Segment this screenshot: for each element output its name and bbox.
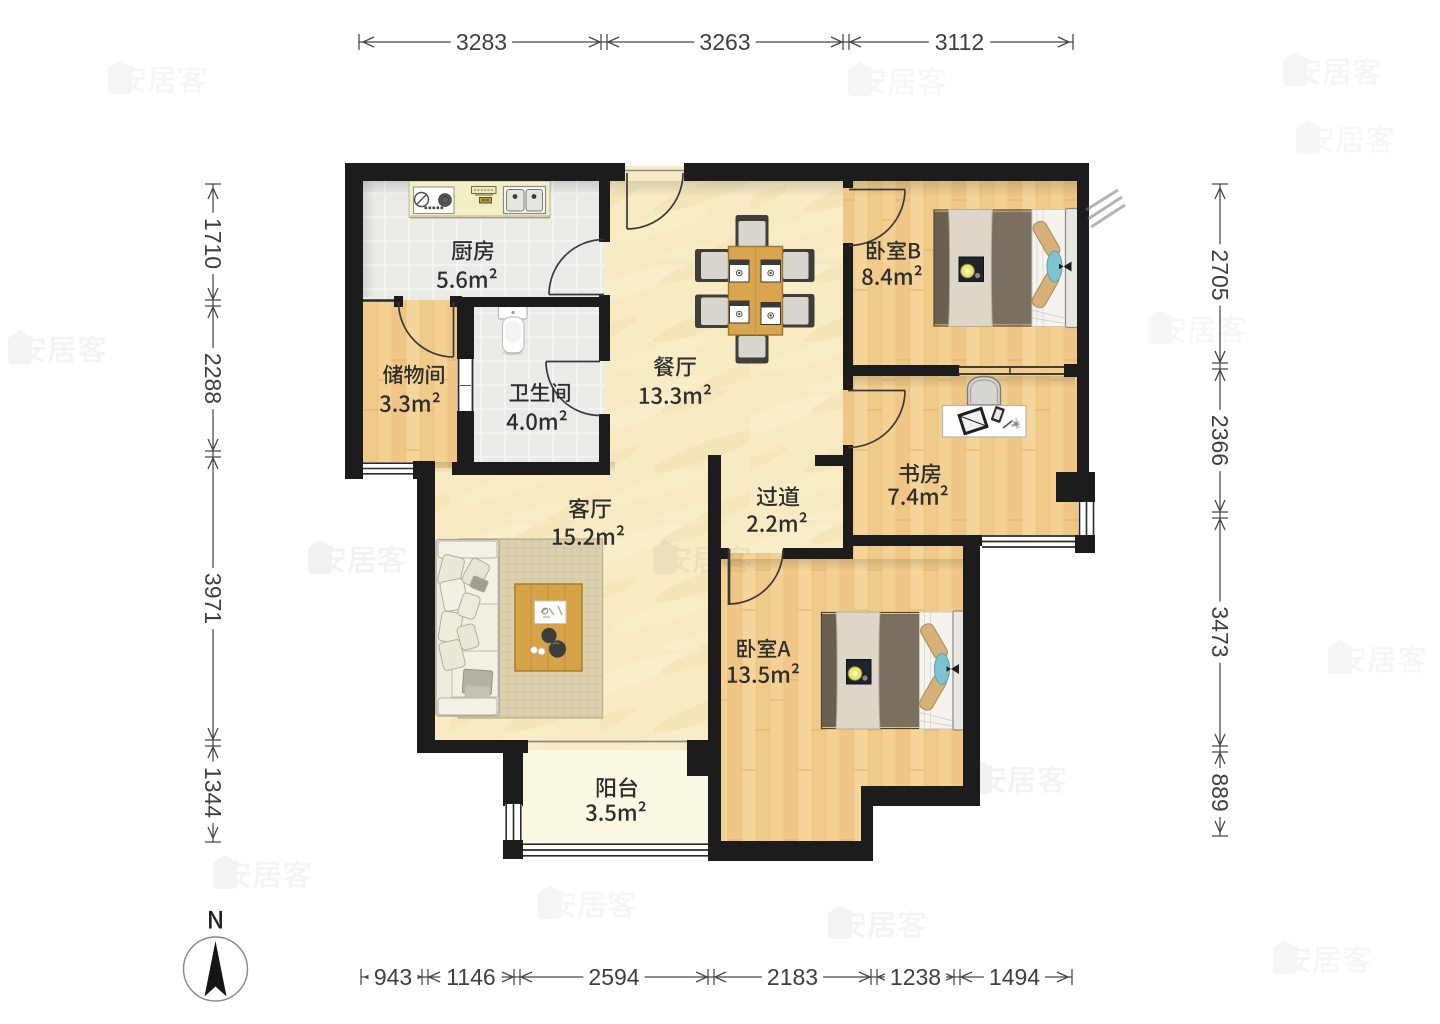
svg-text:3971: 3971 [200, 573, 226, 624]
svg-text:1344: 1344 [200, 767, 226, 818]
svg-text:889: 889 [1207, 773, 1233, 811]
svg-text:2366: 2366 [1207, 415, 1233, 466]
svg-text:2183: 2183 [767, 964, 818, 990]
svg-text:2288: 2288 [200, 353, 226, 404]
svg-text:3112: 3112 [935, 29, 984, 55]
svg-text:3283: 3283 [456, 29, 507, 55]
svg-text:2705: 2705 [1207, 249, 1233, 300]
svg-text:1146: 1146 [446, 964, 495, 990]
svg-text:1710: 1710 [200, 218, 226, 269]
svg-text:2594: 2594 [588, 964, 639, 990]
svg-text:1494: 1494 [989, 964, 1040, 990]
svg-text:943: 943 [374, 964, 412, 990]
svg-text:1238: 1238 [890, 964, 941, 990]
svg-text:3473: 3473 [1207, 606, 1233, 657]
svg-text:3263: 3263 [699, 29, 750, 55]
